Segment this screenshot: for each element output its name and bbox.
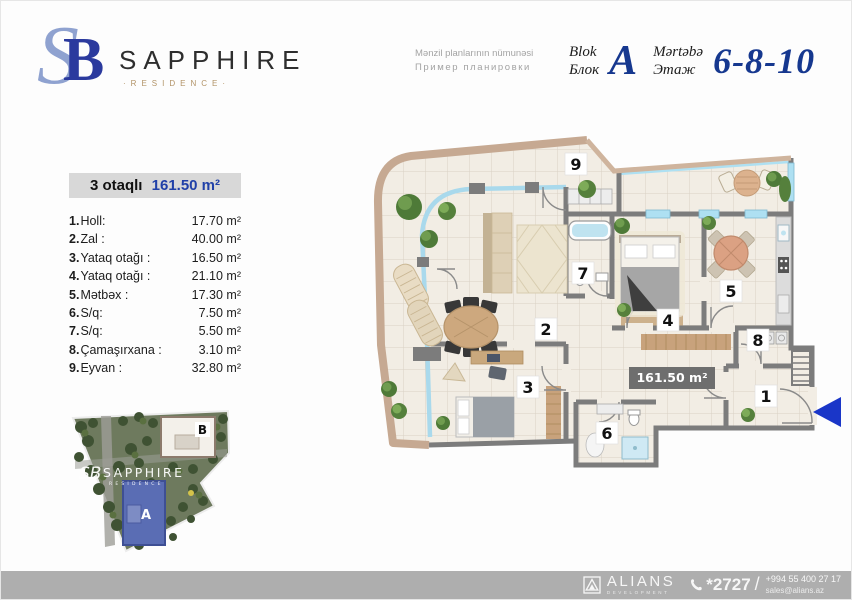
email: sales@alians.az: [766, 586, 841, 596]
svg-text:5: 5: [725, 282, 736, 301]
apartment-title: 3 otaqlı 161.50 m²: [69, 173, 241, 198]
alians-logo: ALIANS DEVELOPMENT: [583, 574, 675, 596]
dining-table: [444, 297, 498, 357]
room-badge-3: 3: [517, 376, 539, 398]
room-name: 1.Holl:: [69, 212, 105, 230]
block-value: A: [609, 37, 637, 85]
site-map: B A SB SAPPHIRE RESIDENCE: [43, 397, 249, 559]
monogram-b: B: [63, 25, 104, 96]
plan-note: Mənzil planlarının nümunəsi Пример плани…: [415, 47, 553, 76]
room-list-item: 3.Yataq otağı :16.50 m²: [69, 249, 241, 267]
phone-icon: [689, 578, 703, 592]
floor-label-ru: Этаж: [653, 61, 703, 79]
floor-label-az: Mərtəbə: [653, 43, 703, 61]
watermark-monogram: SB: [79, 464, 101, 484]
floor-label: Mərtəbə Этаж: [653, 43, 703, 79]
room-list-item: 4.Yataq otağı :21.10 m²: [69, 267, 241, 285]
phone-short: *2727: [706, 575, 750, 595]
building-b: B: [161, 417, 215, 457]
room-list-item: 2.Zal :40.00 m²: [69, 230, 241, 248]
svg-text:6: 6: [601, 424, 612, 443]
brochure-page: S B SAPPHIRE ·RESIDENCE· Mənzil planları…: [0, 0, 852, 600]
sb-monogram-icon: S B: [37, 21, 115, 105]
plan-note-az: Mənzil planlarının nümunəsi: [415, 47, 553, 61]
entrance-arrow-icon: [813, 397, 841, 427]
room-area-value: 17.70 m²: [192, 212, 241, 230]
phone-full: +994 55 400 27 17: [766, 574, 841, 586]
brand-logo: S B SAPPHIRE ·RESIDENCE·: [37, 19, 267, 109]
room-badge-1: 1: [755, 385, 777, 407]
building-a-label: A: [141, 508, 151, 523]
playground: [188, 490, 194, 496]
room-area-value: 5.50 m²: [199, 322, 241, 340]
room-name: 5.Mətbəx :: [69, 286, 128, 304]
room-badge-7: 7: [572, 262, 594, 284]
brand-name: SAPPHIRE: [119, 45, 307, 76]
room-list-item: 7.S/q:5.50 m²: [69, 322, 241, 340]
room-area-value: 3.10 m²: [199, 341, 241, 359]
floor-value: 6-8-10: [713, 40, 815, 82]
room-area-value: 17.30 m²: [192, 286, 241, 304]
room-badge-8: 8: [747, 329, 769, 351]
room-badge-4: 4: [657, 309, 679, 331]
building-b-label: B: [198, 423, 207, 437]
watermark-sub: RESIDENCE: [109, 481, 164, 487]
room-name: 7.S/q:: [69, 322, 103, 340]
brand-subtitle: ·RESIDENCE·: [123, 79, 230, 88]
apartment-type: 3 otaqlı: [90, 177, 143, 194]
room-area-value: 7.50 m²: [199, 304, 241, 322]
room-area-value: 32.80 m²: [192, 359, 241, 377]
floor-plan: 161.50 m² 9 7 2 3 4 5 8 1 6: [359, 127, 851, 471]
room-name: 6.S/q:: [69, 304, 103, 322]
alians-subtitle: DEVELOPMENT: [607, 591, 675, 596]
alians-triangle-icon: [583, 576, 601, 594]
room-list-item: 9.Eyvan :32.80 m²: [69, 359, 241, 377]
alians-name: ALIANS: [607, 574, 675, 589]
block-label: Blok Блок: [569, 43, 599, 79]
room-badge-6: 6: [596, 422, 618, 444]
rug: [517, 225, 567, 293]
plan-area-badge: 161.50 m²: [629, 367, 715, 389]
room-area-value: 40.00 m²: [192, 230, 241, 248]
room-list-item: 8.Çamaşırxana :3.10 m²: [69, 341, 241, 359]
svg-text:1: 1: [760, 387, 771, 406]
kitchen-counter: [776, 217, 791, 325]
footer-bar: ALIANS DEVELOPMENT *2727 / +994 55 400 2…: [1, 571, 851, 599]
apartment-summary: 3 otaqlı 161.50 m² 1.Holl:17.70 m²2.Zal …: [69, 173, 241, 378]
room-name: 2.Zal :: [69, 230, 105, 248]
building-a: A: [123, 481, 165, 545]
room-list-item: 1.Holl:17.70 m²: [69, 212, 241, 230]
footer-separator: /: [755, 574, 760, 595]
room-name: 3.Yataq otağı :: [69, 249, 150, 267]
room-area-value: 21.10 m²: [192, 267, 241, 285]
svg-text:8: 8: [752, 331, 763, 350]
stair-core: [792, 351, 810, 385]
room-list-item: 5.Mətbəx :17.30 m²: [69, 286, 241, 304]
room-name: 8.Çamaşırxana :: [69, 341, 162, 359]
svg-text:2: 2: [540, 320, 551, 339]
room-badge-5: 5: [720, 280, 742, 302]
room-badge-2: 2: [535, 318, 557, 340]
room-name: 4.Yataq otağı :: [69, 267, 150, 285]
svg-text:9: 9: [570, 155, 581, 174]
footer-phone: *2727 / +994 55 400 27 17 sales@alians.a…: [689, 574, 841, 596]
plan-note-ru: Пример планировки: [415, 61, 553, 75]
block-label-ru: Блок: [569, 61, 599, 79]
room-area-value: 16.50 m²: [192, 249, 241, 267]
svg-text:4: 4: [662, 311, 673, 330]
sofa: [483, 213, 512, 293]
apartment-total-area: 161.50 m²: [152, 177, 220, 194]
room-list: 1.Holl:17.70 m²2.Zal :40.00 m²3.Yataq ot…: [69, 212, 241, 378]
room-badge-9: 9: [565, 153, 587, 175]
plan-header: Mənzil planlarının nümunəsi Пример плани…: [415, 37, 815, 85]
svg-text:3: 3: [522, 378, 533, 397]
room-list-item: 6.S/q:7.50 m²: [69, 304, 241, 322]
block-label-az: Blok: [569, 43, 599, 61]
svg-text:7: 7: [577, 264, 588, 283]
svg-text:161.50 m²: 161.50 m²: [636, 370, 707, 385]
room-name: 9.Eyvan :: [69, 359, 122, 377]
watermark-name: SAPPHIRE: [103, 465, 184, 480]
